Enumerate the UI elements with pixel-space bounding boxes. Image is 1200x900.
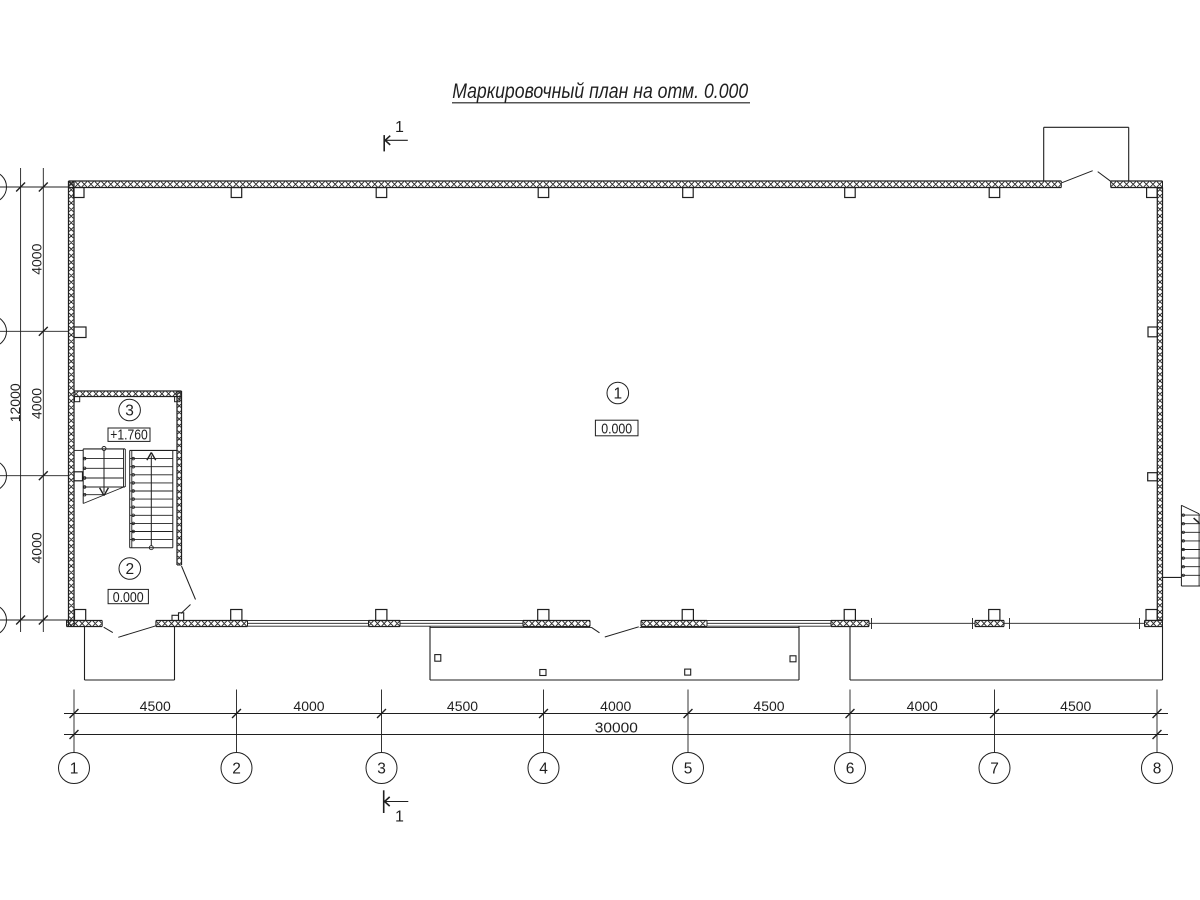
svg-text:5: 5 — [684, 761, 693, 778]
svg-text:4500: 4500 — [1060, 698, 1091, 714]
svg-text:2: 2 — [232, 761, 241, 778]
svg-text:0.000: 0.000 — [601, 421, 632, 438]
svg-text:+1.760: +1.760 — [110, 427, 148, 444]
svg-text:4: 4 — [539, 761, 548, 778]
svg-text:1: 1 — [395, 809, 404, 826]
svg-text:6: 6 — [846, 761, 855, 778]
svg-text:4000: 4000 — [28, 243, 44, 274]
svg-text:0.000: 0.000 — [113, 589, 144, 606]
svg-text:Маркировочный план на отм. 0.0: Маркировочный план на отм. 0.000 — [452, 79, 748, 103]
svg-text:4000: 4000 — [28, 532, 44, 563]
svg-text:3: 3 — [125, 403, 134, 420]
svg-text:4000: 4000 — [907, 698, 938, 714]
svg-text:8: 8 — [1153, 761, 1162, 778]
svg-text:12000: 12000 — [7, 383, 23, 422]
svg-text:4500: 4500 — [753, 698, 784, 714]
svg-text:1: 1 — [70, 761, 79, 778]
svg-text:4000: 4000 — [293, 698, 324, 714]
svg-text:2: 2 — [125, 561, 134, 578]
svg-text:1: 1 — [613, 386, 622, 403]
svg-text:7: 7 — [990, 761, 999, 778]
svg-text:4000: 4000 — [600, 698, 631, 714]
svg-text:1: 1 — [395, 119, 404, 136]
svg-text:4500: 4500 — [140, 698, 171, 714]
svg-text:30000: 30000 — [595, 719, 638, 736]
svg-text:3: 3 — [377, 761, 386, 778]
svg-text:4500: 4500 — [447, 698, 478, 714]
svg-text:4000: 4000 — [28, 388, 44, 419]
